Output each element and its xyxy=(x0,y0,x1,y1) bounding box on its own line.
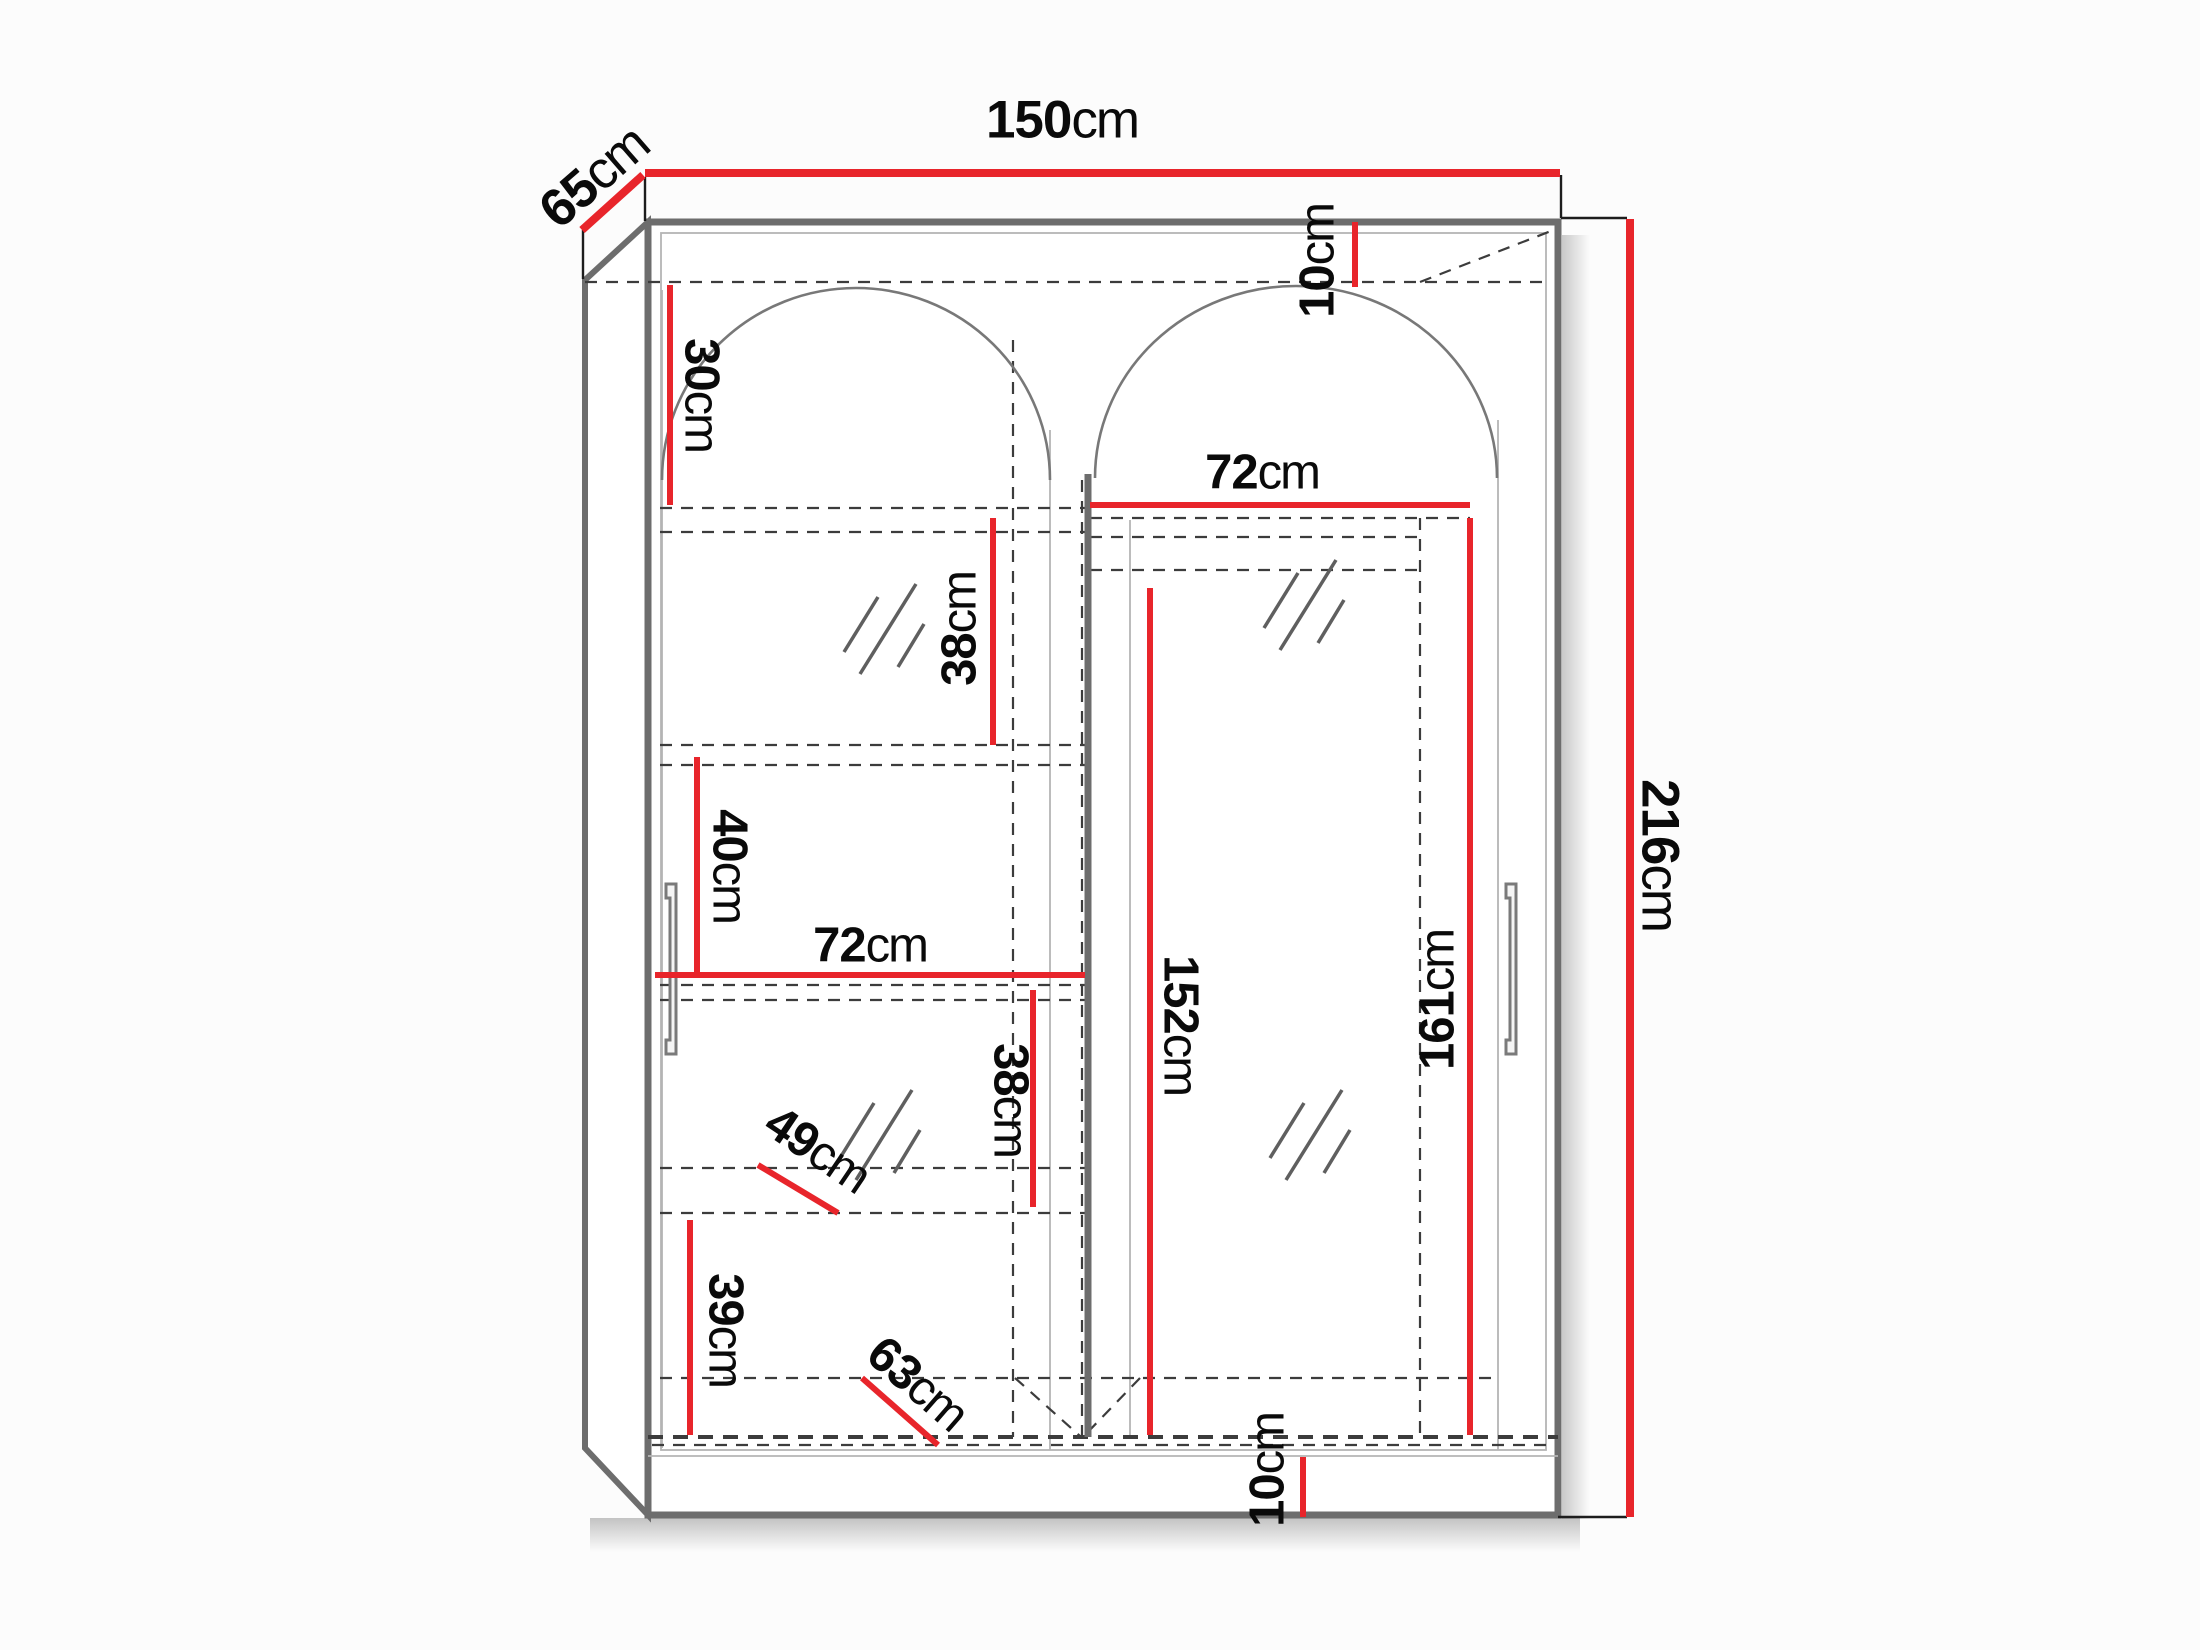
dim-label-width-150: 150cm xyxy=(986,94,1138,147)
dim-label-39: 39cm xyxy=(701,1273,750,1387)
dim-label-161: 161cm xyxy=(1414,930,1463,1070)
dim-label-38-lower: 38cm xyxy=(986,1043,1035,1157)
dim-label-72-right: 72cm xyxy=(1205,449,1319,498)
side-panel xyxy=(585,222,648,1515)
dim-label-40: 40cm xyxy=(705,809,754,923)
wardrobe-dimension-diagram: 150cm 65cm 216cm 10cm 30cm 72cm 38cm 40c… xyxy=(0,0,2200,1650)
dim-label-top-10: 10cm xyxy=(1294,204,1343,318)
dim-label-152: 152cm xyxy=(1156,955,1205,1095)
dim-label-30: 30cm xyxy=(677,338,726,452)
dim-label-height-216: 216cm xyxy=(1634,779,1687,931)
dim-label-72-left: 72cm xyxy=(813,922,927,971)
dim-label-38-upper: 38cm xyxy=(936,572,985,686)
wardrobe-line-drawing xyxy=(0,0,2200,1650)
dim-label-bottom-10: 10cm xyxy=(1244,1413,1293,1527)
wardrobe-front-face xyxy=(648,222,1558,1515)
